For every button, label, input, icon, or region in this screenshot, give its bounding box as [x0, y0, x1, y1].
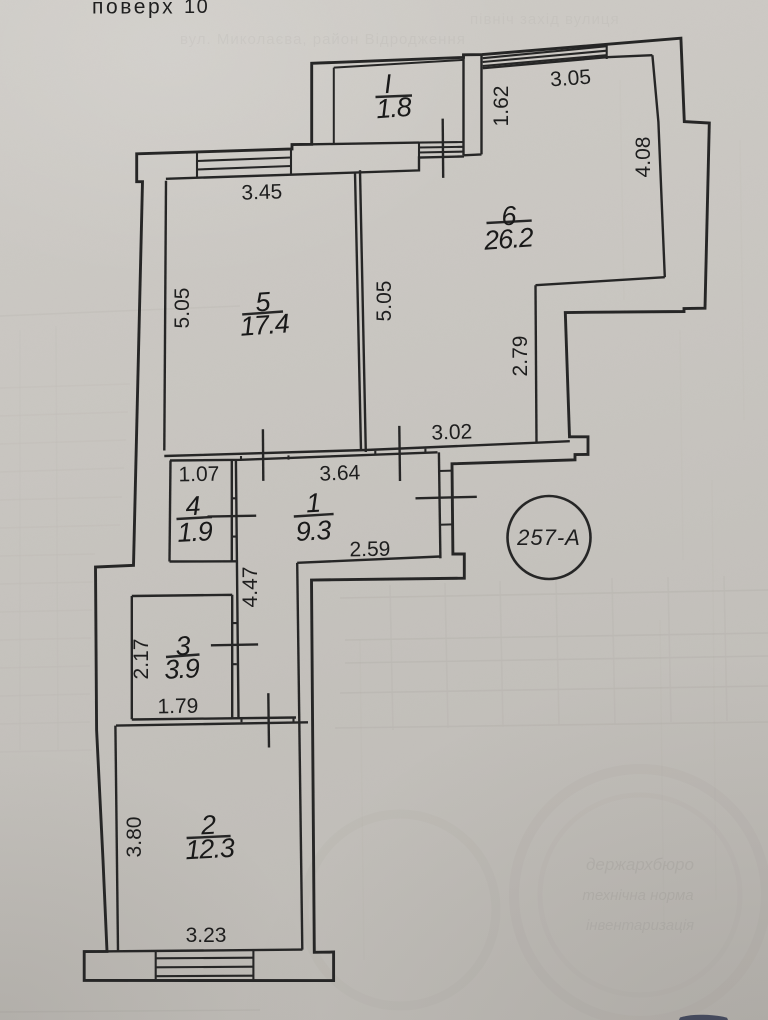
svg-text:1.8: 1.8 — [375, 92, 413, 124]
svg-text:3.05: 3.05 — [549, 66, 591, 92]
svg-text:5.05: 5.05 — [171, 288, 194, 329]
svg-text:2.17: 2.17 — [130, 639, 153, 680]
svg-text:інвентаризація: інвентаризація — [586, 917, 694, 934]
svg-text:10: 10 — [184, 0, 209, 18]
svg-text:12.3: 12.3 — [184, 833, 235, 866]
svg-text:поверх: поверх — [92, 0, 175, 19]
svg-text:1.9: 1.9 — [176, 516, 213, 548]
svg-text:26.2: 26.2 — [482, 222, 535, 255]
svg-text:1: 1 — [305, 488, 321, 519]
svg-text:технічна норма: технічна норма — [582, 887, 693, 904]
svg-text:держархбюро: держархбюро — [586, 855, 694, 874]
svg-text:північ захід вулиця: північ захід вулиця — [470, 11, 620, 28]
svg-text:2.59: 2.59 — [349, 538, 390, 562]
svg-text:9.3: 9.3 — [295, 515, 332, 547]
svg-text:3.02: 3.02 — [431, 420, 473, 444]
svg-text:3.45: 3.45 — [241, 180, 283, 204]
svg-text:3.9: 3.9 — [163, 653, 200, 685]
svg-text:4.47: 4.47 — [239, 567, 262, 608]
svg-text:5.05: 5.05 — [373, 281, 396, 322]
svg-text:17.4: 17.4 — [239, 308, 290, 341]
svg-text:1.07: 1.07 — [178, 463, 219, 487]
svg-text:вул. Миколаєва, район Відродже: вул. Миколаєва, район Відродження — [180, 31, 466, 48]
svg-text:3.80: 3.80 — [123, 817, 146, 858]
svg-text:3.64: 3.64 — [319, 461, 361, 485]
svg-text:4.08: 4.08 — [632, 137, 655, 178]
svg-text:257-А: 257-А — [516, 525, 581, 550]
svg-text:3.23: 3.23 — [186, 924, 227, 947]
svg-text:2.79: 2.79 — [509, 336, 532, 377]
svg-text:1.62: 1.62 — [490, 86, 513, 127]
svg-text:1.79: 1.79 — [157, 695, 198, 719]
